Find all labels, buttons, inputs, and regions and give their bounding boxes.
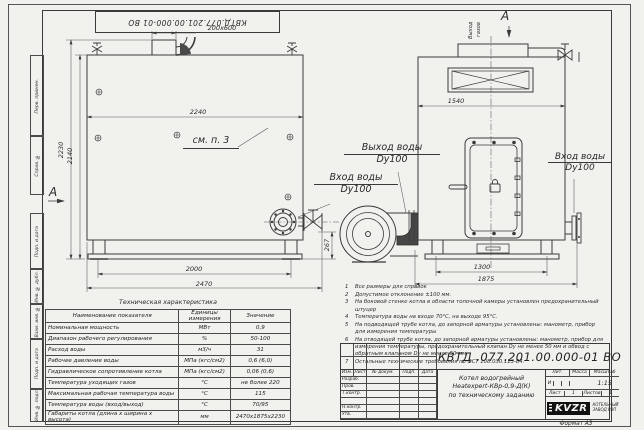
logo-caption: КОТЕЛЬНЫЙ ЗАВОД РЭП — [592, 403, 618, 413]
view-a-label: А — [501, 9, 509, 23]
sign-col-header: Дата — [419, 370, 437, 377]
water-outlet-elbow — [397, 214, 418, 245]
title-block-number-row: КВТД .077.201.00.000-01 ВО — [341, 344, 609, 370]
sheets-no: 1 — [602, 391, 620, 396]
dim-body-height: 2140 — [66, 143, 74, 169]
water-outlet-dn: Dy100 — [344, 155, 440, 166]
tech-table-row: Расход водым3/ч31 — [46, 345, 291, 356]
sign-row-label: Утв. — [341, 412, 367, 419]
water-outlet-label: Выход воды Dy100 — [344, 143, 440, 166]
tech-table-row: Рабочее давление водыМПа (кгс/см2)0,6 (6… — [46, 356, 291, 367]
sign-col-header: Лист — [354, 370, 367, 377]
side-view-dimensions — [48, 31, 340, 292]
sign-row-label: Пров. — [341, 384, 367, 391]
note-item: 5На подводящей трубе котла, до запорной … — [345, 322, 607, 336]
note-item: 3На боковой стенке котла в области топоч… — [345, 299, 607, 313]
sign-row-label — [341, 398, 367, 405]
lock-icon — [490, 180, 500, 193]
sheets-header: Листов — [583, 391, 602, 396]
flue-fan — [340, 206, 418, 262]
dim-body-length: 2240 — [175, 108, 221, 116]
format-note: Формат А3 — [545, 421, 607, 427]
water-inlet-flange-front — [565, 213, 581, 243]
title-block: КВТД .077.201.00.000-01 ВО Изм.Лист№ док… — [340, 343, 610, 420]
note-item: 4Температура воды на входе 70°С, на выхо… — [345, 314, 607, 321]
tech-table: Наименование показателя Единицы измерени… — [45, 309, 291, 425]
see-note-callout: см. п. 3 — [183, 136, 239, 149]
lit-value: И — [546, 381, 554, 386]
water-inlet-right-dn: Dy100 — [548, 163, 612, 173]
stamp-right-block: Лит. Масса Масштаб И 1:15 Лист 1 Листов — [546, 370, 619, 419]
mass-header: Масса — [570, 370, 590, 376]
section-a-label: А — [49, 185, 57, 199]
water-inlet-right-label: Вход воды Dy100 — [548, 152, 612, 174]
sign-row-label: Разраб. — [341, 377, 367, 384]
sign-row-label: Н.контр. — [341, 405, 367, 412]
sheet-no: 1 — [565, 391, 584, 396]
water-inlet-dn: Dy100 — [314, 185, 398, 196]
tech-table-row: Диапазон рабочего регулирования%50-100 — [46, 334, 291, 345]
scale-value: 1:15 — [590, 379, 619, 387]
dim-total-length: 2470 — [180, 280, 228, 288]
sheet-header: Лист — [546, 391, 565, 396]
revision-cells — [341, 344, 438, 369]
scale-header: Масштаб — [590, 370, 619, 376]
tech-header-name: Наименование показателя — [46, 310, 179, 323]
tech-table-row: Температура воды (вход/выход)°С70/95 — [46, 400, 291, 411]
dim-total-width: 1875 — [462, 275, 510, 283]
dim-chimney-size: 200х600 — [196, 24, 248, 33]
note-item: 2Допустимое отклонение ±100 мм. — [345, 292, 607, 299]
drawing-sheet: Перв. примен.Справ. №Подп. и датаИнв. № … — [0, 0, 644, 430]
sign-col-header: № докум. — [367, 370, 400, 377]
furnace-door — [449, 138, 522, 238]
tech-table-row: Температура уходящих газов°Сне более 220 — [46, 378, 291, 389]
dim-skid-length: 2000 — [170, 265, 218, 273]
dim-inlet-height: 267 — [323, 235, 331, 255]
stamp-title: Котел водогрейный Heatexpert-КВр-0,9-Д(К… — [438, 370, 546, 419]
lit-header: Лит. — [546, 370, 570, 376]
sign-col-header: Изм. — [341, 370, 354, 377]
tech-table-row: Максимальная рабочая температура воды°С1… — [46, 389, 291, 400]
dim-front-width: 1540 — [436, 97, 476, 105]
gas-outlet-label: Выход газов — [468, 7, 484, 53]
door-handle — [449, 185, 467, 189]
dim-front-skid-width: 1300 — [458, 263, 506, 271]
tech-table-body: Номинальная мощностьМВт0,9Диапазон рабоч… — [46, 323, 291, 424]
corner-doc-number-box: КВТД.077.201.00.000-01 ВО — [95, 11, 280, 33]
tech-table-title: Техническая характеристика — [45, 299, 291, 306]
sign-row-label: Т.контр. — [341, 391, 367, 398]
dim-total-height: 2230 — [57, 137, 65, 163]
tech-table-row: Гидравлическое сопротивление котлаМПа (к… — [46, 367, 291, 378]
stamp-doc-number: КВТД .077.201.00.000-01 ВО — [438, 344, 621, 369]
tech-header-value: Значение — [230, 310, 290, 323]
tech-header-units: Единицы измерения — [179, 310, 230, 323]
tech-table-row: Габариты котла (длина х ширина х высота)… — [46, 411, 291, 424]
inlet-valve-icon — [298, 210, 322, 231]
signature-block: Изм.Лист№ докум.Подп.ДатаРазраб.Пров.Т.к… — [341, 370, 438, 419]
water-inlet-label: Вход воды Dy100 — [314, 173, 398, 196]
kvzr-logo: KVZR — [547, 402, 590, 415]
note-item: 1Все размеры для справок — [345, 284, 607, 291]
sign-col-header: Подп. — [400, 370, 419, 377]
company-logo: KVZR КОТЕЛЬНЫЙ ЗАВОД РЭП — [546, 397, 619, 419]
tech-table-row: Номинальная мощностьМВт0,9 — [46, 323, 291, 334]
water-inlet-right-text: Вход воды — [548, 152, 612, 163]
